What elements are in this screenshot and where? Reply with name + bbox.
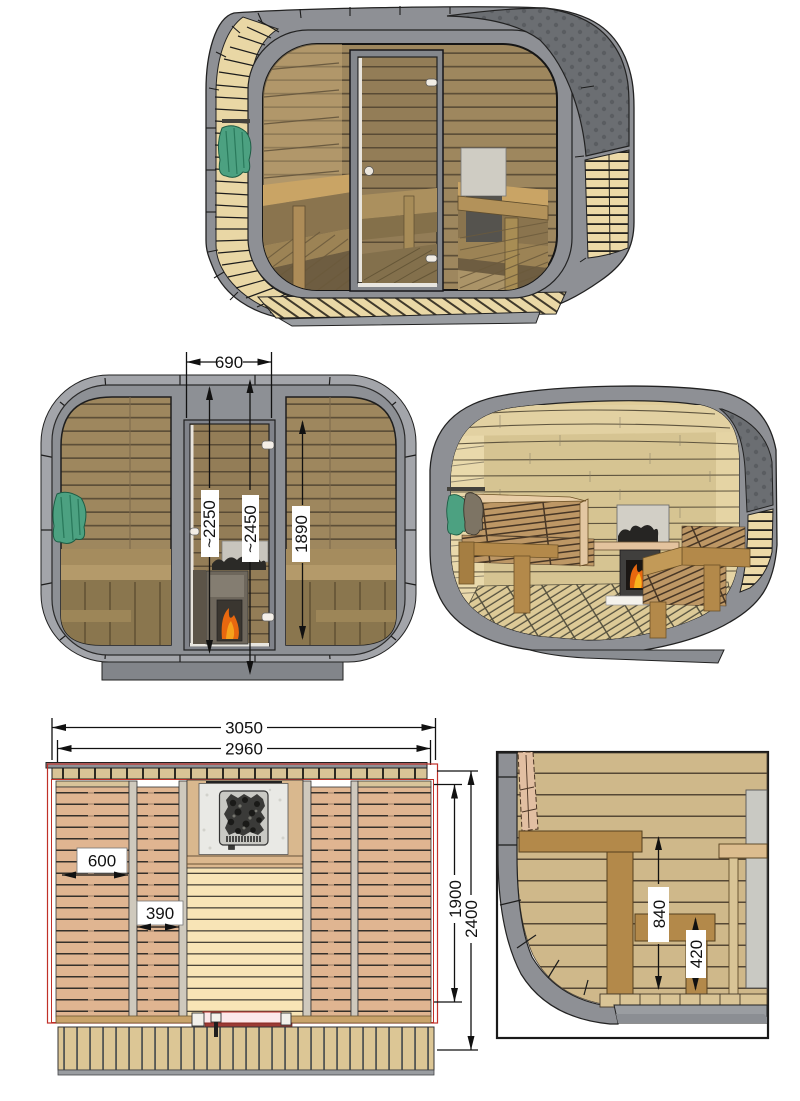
svg-text:2960: 2960 xyxy=(225,740,263,759)
svg-text:600: 600 xyxy=(88,852,116,871)
svg-text:390: 390 xyxy=(146,904,174,923)
svg-text:1890: 1890 xyxy=(292,515,311,553)
svg-text:3050: 3050 xyxy=(225,719,263,738)
svg-text:420: 420 xyxy=(687,940,706,968)
svg-text:~2250: ~2250 xyxy=(200,500,219,548)
svg-text:2400: 2400 xyxy=(462,900,481,938)
svg-text:840: 840 xyxy=(650,900,669,928)
svg-text:690: 690 xyxy=(215,353,243,372)
svg-text:~2450: ~2450 xyxy=(241,505,260,553)
